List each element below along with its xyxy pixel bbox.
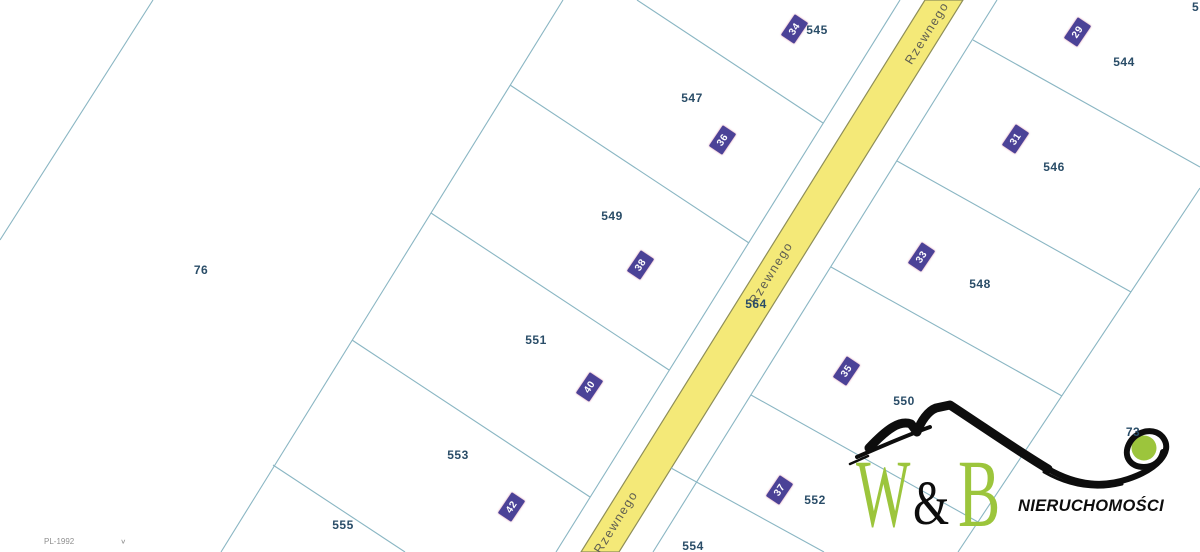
parcel-label-547: 547 [681, 91, 703, 105]
parcel-label-73: 73 [1126, 425, 1140, 439]
parcel-label-545: 545 [806, 23, 828, 37]
parcel-label-549: 549 [601, 209, 623, 223]
parcel-label-554: 554 [682, 539, 704, 552]
parcel-label-553: 553 [447, 448, 469, 462]
logo-letter-w: W [856, 446, 910, 542]
crs-selector[interactable]: PL-1992 ∨ [44, 537, 126, 546]
parcel-label-555: 555 [332, 518, 354, 532]
parcel-label-546: 546 [1043, 160, 1065, 174]
map-viewport[interactable]: Rzewnego Rzewnego Rzewnego 76 545 547 54… [0, 0, 1200, 552]
logo-subtitle: NIERUCHOMOŚCI [1018, 497, 1164, 516]
parcel-label-550: 550 [893, 394, 915, 408]
parcel-boundary-lines [0, 0, 1200, 552]
parcel-label-clipped: 5 [1192, 0, 1199, 14]
logo-ampersand: & [913, 473, 949, 535]
parcel-label-548: 548 [969, 277, 991, 291]
cadastral-map-layer [0, 0, 1200, 552]
crs-label: PL-1992 [44, 537, 74, 546]
parcel-label-76: 76 [194, 263, 208, 277]
parcel-label-544: 544 [1113, 55, 1135, 69]
parcel-label-564: 564 [745, 297, 767, 311]
parcel-label-551: 551 [525, 333, 547, 347]
logo-letter-b: B [958, 446, 1000, 542]
chevron-down-icon[interactable]: ∨ [120, 538, 126, 545]
parcel-label-552: 552 [804, 493, 826, 507]
